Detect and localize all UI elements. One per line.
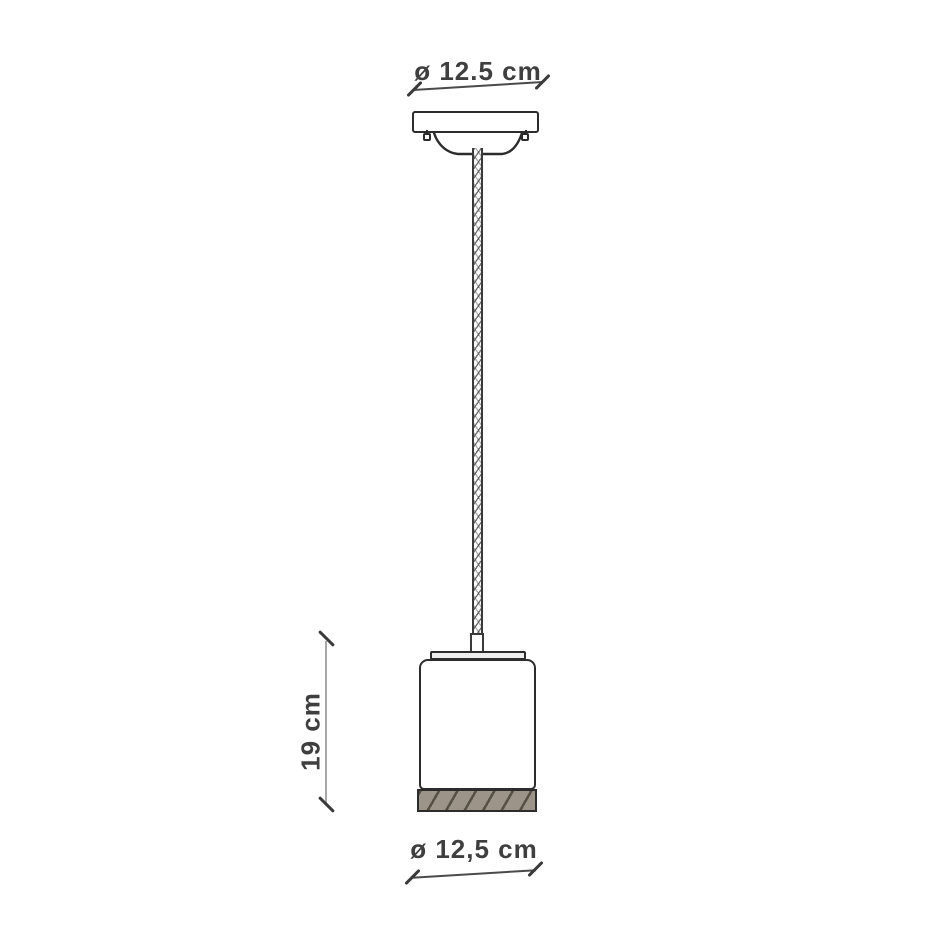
dimension-label-height: 19 cm	[296, 687, 327, 777]
base-band	[417, 789, 537, 812]
dimension-label-bottom-diameter: ø 12,5 cm	[394, 834, 554, 865]
dimension-line-bottom	[412, 869, 536, 879]
cylindrical-shade	[419, 659, 536, 790]
ceiling-canopy	[412, 111, 539, 133]
pendant-lamp-dimension-drawing: ø 12.5 cm 19 cm ø 12,5 cm	[0, 0, 950, 950]
braided-cable	[472, 148, 483, 636]
